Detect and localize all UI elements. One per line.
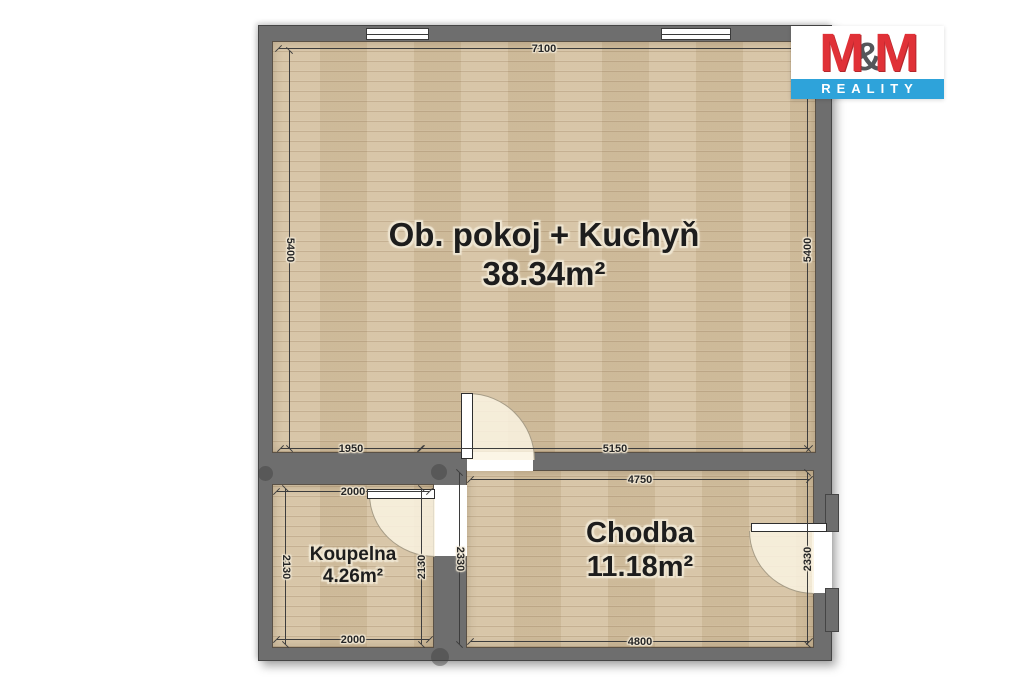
dimension-label: 2330 — [454, 542, 466, 574]
dimension-label: 4750 — [624, 474, 656, 486]
mm-reality-logo: M & M REALITY — [791, 26, 944, 99]
window-pane-line — [662, 34, 730, 35]
dimension-label: 1950 — [335, 443, 367, 455]
dimension-hallway-top: 4750 — [471, 479, 809, 480]
room-name: Ob. pokoj + Kuchyň — [272, 216, 816, 255]
entrance-wall-jamb-bottom — [825, 588, 839, 632]
room-name: Koupelna — [272, 544, 434, 566]
window-symbol — [661, 28, 731, 40]
dimension-living-top: 7100 — [279, 48, 809, 49]
entrance-wall-jamb-top — [825, 494, 839, 532]
floorplan-page: 7100 5400 5400 1950 5150 4750 4800 2330 … — [0, 0, 1024, 683]
room-area: 11.18m² — [466, 550, 814, 584]
dimension-bathroom-bottom: 2000 — [277, 639, 429, 640]
living-door-leaf — [461, 393, 473, 459]
room-area: 38.34m² — [272, 255, 816, 294]
dimension-label: 2000 — [337, 486, 369, 498]
window-symbol — [366, 28, 429, 40]
room-area: 4.26m² — [272, 566, 434, 588]
wall-junction-dot — [431, 464, 447, 480]
logo-mm-text: M & M — [791, 26, 944, 79]
room-label-hallway: Chodba 11.18m² — [466, 516, 814, 584]
entrance-door-opening — [812, 531, 832, 593]
room-name: Chodba — [466, 516, 814, 550]
window-pane-line — [367, 34, 428, 35]
dimension-living-bottom-left: 1950 — [281, 448, 421, 449]
dimension-label: 5150 — [599, 443, 631, 455]
floorplan: 7100 5400 5400 1950 5150 4750 4800 2330 … — [258, 25, 832, 661]
wall-junction-dot — [258, 466, 273, 481]
dimension-label: 2000 — [337, 634, 369, 646]
dimension-bathroom-top: 2000 — [277, 491, 429, 492]
dimension-hallway-bottom: 4800 — [471, 641, 809, 642]
dimension-label: 7100 — [528, 43, 560, 55]
dimension-hallway-left: 2330 — [459, 473, 460, 644]
room-label-living: Ob. pokoj + Kuchyň 38.34m² — [272, 216, 816, 294]
logo-reality-bar: REALITY — [791, 79, 944, 99]
wall-junction-dot — [431, 648, 449, 666]
room-label-bathroom: Koupelna 4.26m² — [272, 544, 434, 589]
dimension-living-bottom-right: 5150 — [421, 448, 809, 449]
logo-letter-m: M — [874, 26, 916, 80]
dimension-label: 4800 — [624, 636, 656, 648]
logo-letter-m: M — [819, 26, 861, 80]
